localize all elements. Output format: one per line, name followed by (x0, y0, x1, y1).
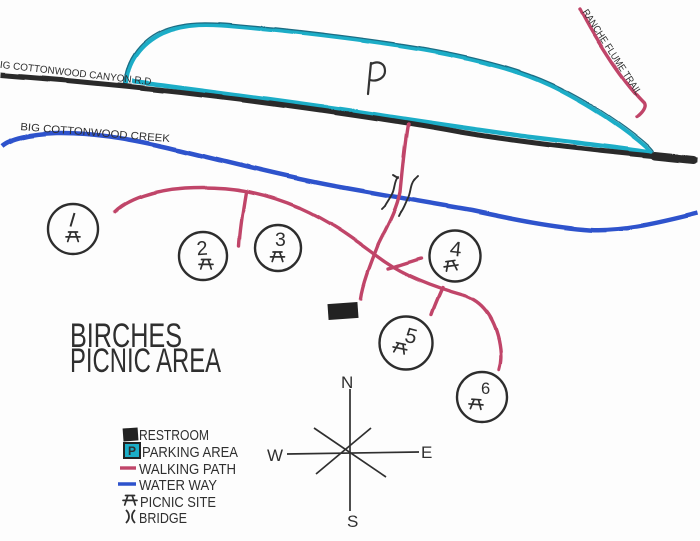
svg-text:2: 2 (196, 238, 209, 261)
svg-text:RESTROOM: RESTROOM (139, 427, 209, 444)
svg-text:WATER WAY: WATER WAY (139, 477, 217, 494)
svg-text:S: S (347, 512, 358, 531)
svg-text:E: E (421, 443, 432, 462)
svg-text:BIG COTTONWOOD CREEK: BIG COTTONWOOD CREEK (20, 121, 170, 145)
svg-text:3: 3 (275, 229, 286, 251)
svg-text:PICNIC AREA: PICNIC AREA (70, 342, 221, 380)
svg-text:W: W (267, 446, 283, 465)
svg-text:6: 6 (481, 380, 490, 398)
svg-text:PICNIC SITE: PICNIC SITE (140, 494, 216, 511)
svg-text:WALKING PATH: WALKING PATH (139, 461, 236, 478)
svg-text:RANCHE FLUME TRAIL: RANCHE FLUME TRAIL (579, 8, 643, 98)
svg-text:N: N (341, 373, 353, 392)
svg-text:PARKING AREA: PARKING AREA (142, 444, 238, 461)
svg-text:BRIDGE: BRIDGE (139, 510, 187, 527)
svg-text:P: P (128, 444, 136, 458)
